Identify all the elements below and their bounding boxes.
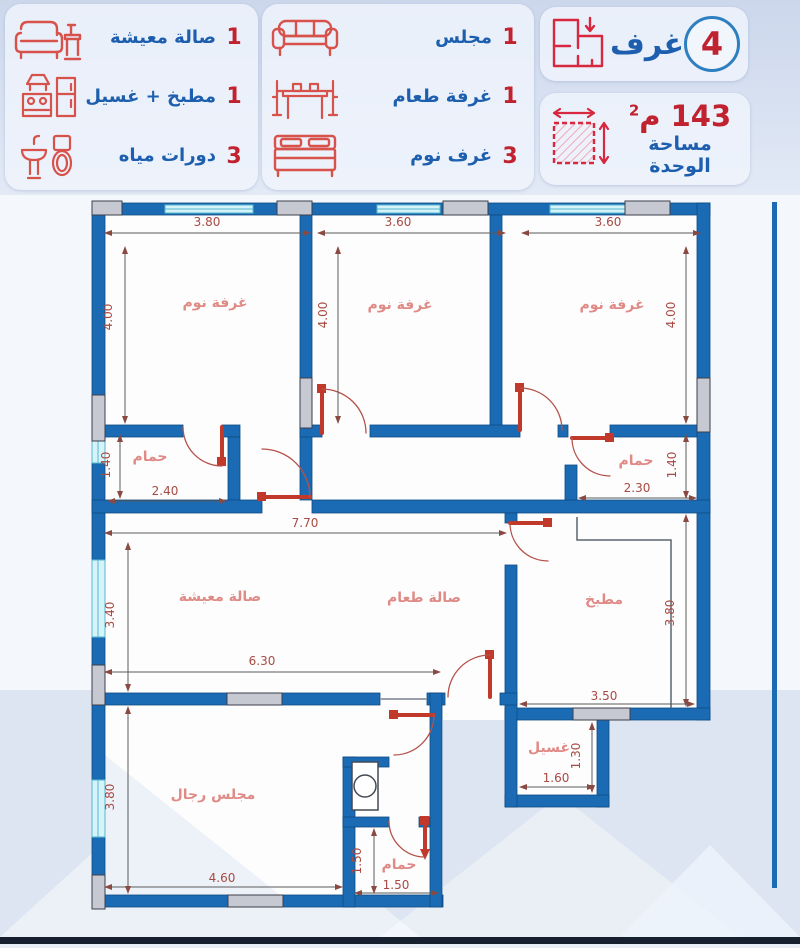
legend-count: 3 [492,144,528,169]
room-label-bath1: حمام [133,449,168,465]
washbasin [352,762,378,810]
dim-label: 1.30 [569,743,583,770]
dim-label: 3.80 [663,600,677,627]
legend-count: 1 [216,84,252,109]
dim-label: 3.80 [103,784,117,811]
area-label: مساحة الوحدة [616,133,744,177]
room-label-bedroom2: غرفة نوم [367,297,432,313]
dim-label: 2.40 [152,484,179,498]
room-label-living-hall: صالة معيشة [179,589,261,605]
legend-count: 1 [216,25,252,50]
legend-item-dining: غرفة طعام 1 [268,69,528,125]
room-label-dining-hall: صالة طعام [387,590,461,606]
area-value: 143 م2 [616,101,744,131]
dim-label: 1.50 [383,878,410,892]
bottom-border-strip [0,937,800,944]
dim-label: 7.70 [292,516,319,530]
legend-column-middle: مجلس 1 غرفة طعام 1 [262,4,534,190]
dim-label: 3.50 [591,689,618,703]
legend-label: غرفة طعام [342,87,492,107]
room-label-laundry: غسيل [528,740,570,756]
dim-label: 1.50 [350,848,364,875]
majlis-sofa-icon [268,15,342,61]
dim-label: 4.00 [101,304,115,331]
legend-count: 1 [492,84,528,109]
legend-item-majlis: مجلس 1 [268,10,528,66]
legend-item-kitchen-laundry: مطبخ + غسيل 1 [11,69,252,125]
room-label-bedroom3: غرفة نوم [579,297,644,313]
dim-label: 4.00 [316,302,330,329]
kitchen-icon [11,70,85,124]
floor-plan-svg: 3.80 3.60 3.60 4.00 4.00 4.00 1.40 2.40 … [0,195,800,944]
dim-label: 1.40 [99,452,113,479]
room-label-kitchen: مطبخ [585,592,623,608]
legend-label: مطبخ + غسيل [85,87,216,107]
living-room-icon [11,13,85,63]
plot-boundary-line [772,202,777,888]
dim-label: 1.60 [543,771,570,785]
dim-label: 3.60 [385,215,412,229]
legend-label: غرف نوم [342,146,492,166]
legend-label: صالة معيشة [85,28,216,48]
rooms-badge-number: 4 [684,16,740,72]
room-label-bath2: حمام [619,453,654,469]
legend-item-bedrooms: غرف نوم 3 [268,128,528,184]
floor-plan-icon [548,12,610,76]
room-label-majlis: مجلس رجال [171,787,256,803]
area-square-icon [546,101,616,177]
legend-label: مجلس [342,28,492,48]
bed-icon [268,132,342,180]
rooms-count-badge: غرف 4 [540,7,748,81]
dim-label: 4.60 [209,871,236,885]
legend-header: صالة معيشة 1 مطبخ + غسيل 1 [0,0,800,195]
rooms-badge-label: غرف [610,27,684,62]
floor-plan: 3.80 3.60 3.60 4.00 4.00 4.00 1.40 2.40 … [0,195,800,944]
dining-table-icon [268,71,342,123]
legend-item-living-hall: صالة معيشة 1 [11,10,252,66]
legend-item-bathrooms: دورات مياه 3 [11,128,252,184]
legend-column-left: صالة معيشة 1 مطبخ + غسيل 1 [5,4,258,190]
dim-label: 3.60 [595,215,622,229]
dim-label: 6.30 [249,654,276,668]
dim-label: 4.00 [664,302,678,329]
room-label-bedroom1: غرفة نوم [182,295,247,311]
unit-area-badge: 143 م2 مساحة الوحدة [540,93,750,185]
legend-count: 3 [216,144,252,169]
area-badge-texts: 143 م2 مساحة الوحدة [616,101,744,177]
dim-label: 1.40 [665,452,679,479]
dim-label: 3.80 [194,215,221,229]
legend-count: 1 [492,25,528,50]
room-label-bath3: حمام [382,857,417,873]
dim-label: 2.30 [624,481,651,495]
bathroom-icon [11,130,85,182]
legend-label: دورات مياه [85,146,216,166]
dim-label: 3.40 [103,602,117,629]
